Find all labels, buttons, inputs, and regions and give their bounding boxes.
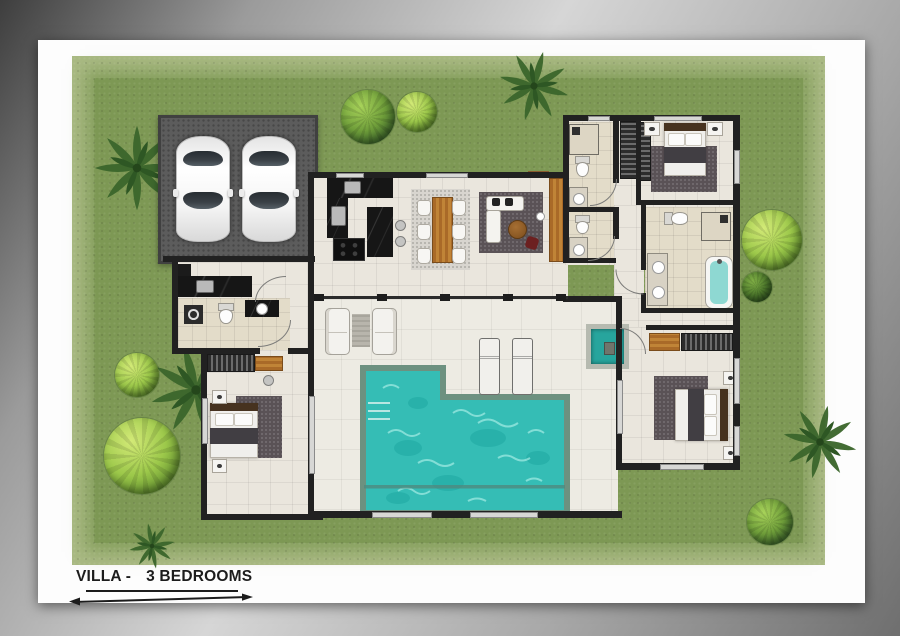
outdoor-sofa: [325, 308, 350, 355]
car-mirror: [294, 189, 299, 197]
washing-machine: [184, 305, 203, 324]
wall: [288, 348, 310, 354]
dining-chair: [452, 200, 466, 216]
dining-chair: [417, 248, 431, 264]
vessel-sink: [256, 303, 268, 315]
laundry-counter: [178, 276, 252, 297]
car-rear-glass: [183, 151, 224, 167]
swimming-pool: [358, 363, 573, 519]
floor-plan-scene: VILLA -3 BEDROOMS: [0, 0, 900, 636]
stool: [263, 375, 274, 386]
laundry-sink: [196, 280, 214, 293]
car-mirror: [239, 189, 244, 197]
nightstand: [644, 122, 660, 136]
window: [309, 396, 315, 474]
kitchen-sink: [331, 206, 346, 226]
nightstand: [707, 122, 723, 136]
dining-table: [432, 197, 453, 263]
wall: [636, 121, 641, 205]
coffee-table: [508, 220, 527, 239]
wall: [201, 514, 323, 520]
dining-chair: [417, 200, 431, 216]
window: [372, 512, 432, 518]
wardrobe: [681, 333, 733, 351]
kitchen-sink: [344, 181, 361, 194]
wall: [613, 119, 619, 183]
double-bed: [664, 123, 706, 176]
tree-icon: [747, 499, 793, 545]
double-bed: [675, 389, 728, 441]
cushion: [492, 198, 500, 206]
outdoor-sofa: [372, 308, 397, 355]
tree-icon: [742, 210, 802, 270]
wall: [641, 205, 646, 270]
car-icon: [176, 136, 230, 242]
cushion: [505, 198, 513, 206]
window: [202, 398, 208, 444]
toilet: [664, 210, 688, 227]
lounge-sofa: [486, 210, 501, 243]
shower: [569, 124, 599, 155]
car-windshield: [183, 192, 224, 209]
tree-icon: [115, 353, 159, 397]
window: [588, 116, 610, 121]
toilet: [573, 156, 592, 177]
toilet: [216, 303, 236, 324]
window: [426, 173, 468, 178]
wall: [563, 296, 618, 302]
window: [734, 426, 740, 456]
door-mullion: [503, 294, 513, 301]
window: [654, 116, 702, 121]
wall: [172, 348, 260, 354]
dining-chair: [452, 224, 466, 240]
nightstand: [212, 459, 227, 473]
caption-part2: 3 BEDROOMS: [146, 568, 252, 585]
shower: [701, 212, 731, 241]
door-mullion: [440, 294, 450, 301]
window: [734, 358, 740, 404]
double-vanity: [647, 253, 668, 306]
bar-stool: [395, 220, 406, 231]
wall: [641, 308, 740, 313]
kitchen-island: [367, 207, 393, 257]
sun-lounger: [512, 338, 533, 395]
car-rear-glass: [249, 151, 290, 167]
caption-arrow-icon: [66, 592, 256, 606]
bar-stool: [395, 236, 406, 247]
door-mullion: [377, 294, 387, 301]
window: [660, 464, 704, 470]
car-icon: [242, 136, 296, 242]
palm-tree-icon: [770, 392, 870, 492]
bathtub: [705, 256, 733, 309]
toilet: [573, 215, 592, 234]
wall: [563, 207, 616, 212]
bench: [649, 333, 680, 351]
stove: [333, 238, 365, 261]
pool-lane-divider: [364, 485, 565, 489]
wall: [308, 511, 622, 518]
tree-icon: [341, 90, 395, 144]
tree-icon: [104, 418, 180, 494]
wall: [172, 256, 178, 354]
decor-bowl: [536, 212, 545, 221]
window: [617, 380, 623, 434]
bench: [255, 356, 283, 371]
caption-part1: VILLA -: [76, 568, 131, 585]
window: [336, 173, 364, 178]
sun-lounger: [479, 338, 500, 395]
tree-icon: [397, 92, 437, 132]
wardrobe: [207, 354, 255, 372]
dining-chair: [417, 224, 431, 240]
car-mirror: [173, 189, 178, 197]
dining-chair: [452, 248, 466, 264]
window: [470, 512, 538, 518]
car-body: [176, 136, 230, 242]
car-mirror: [228, 189, 233, 197]
tree-icon: [742, 272, 772, 302]
car-windshield: [249, 192, 290, 209]
wall: [636, 200, 740, 205]
door-mullion: [314, 294, 324, 301]
wall: [563, 115, 569, 263]
wall: [163, 256, 315, 262]
door-mullion: [556, 294, 566, 301]
window: [734, 150, 740, 184]
double-bed: [210, 403, 258, 458]
outdoor-mat: [352, 314, 370, 347]
wall: [646, 325, 740, 330]
nightstand: [212, 390, 227, 404]
caption-title: VILLA -3 BEDROOMS: [76, 568, 252, 586]
car-body: [242, 136, 296, 242]
